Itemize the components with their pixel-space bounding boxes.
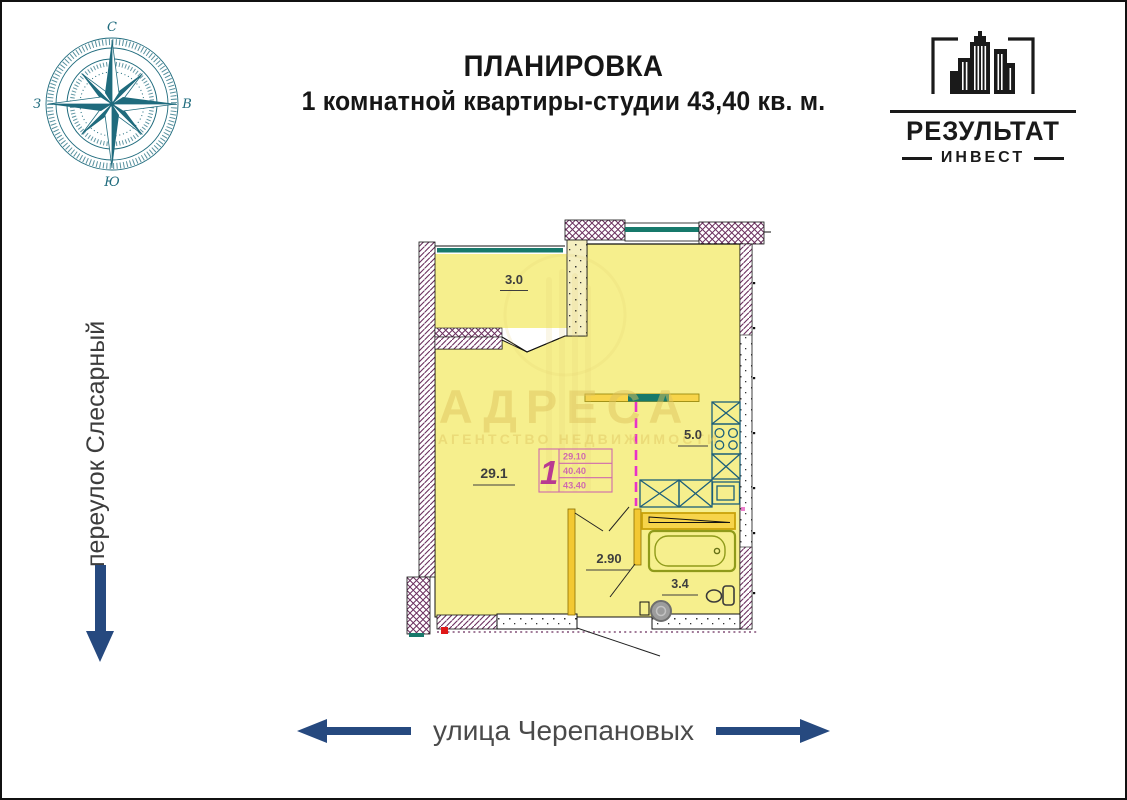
wall-bottom-left-texture — [497, 614, 577, 629]
arrow-head — [86, 631, 114, 662]
window-kitchen — [625, 227, 699, 232]
washing-machine — [651, 601, 671, 621]
wall-right-hatch-bottom — [740, 547, 752, 629]
logo-subtitle-row: ИНВЕСТ — [890, 149, 1076, 167]
logo-subtitle: ИНВЕСТ — [941, 149, 1025, 167]
window-balcony — [437, 248, 563, 253]
corner-teal-mark — [409, 633, 424, 637]
arrow-shaft — [327, 727, 411, 735]
bathroom-area-label: 3.4 — [671, 577, 688, 591]
flyer-page: С В Ю З ПЛАНИРОВКА 1 комнатной квартиры-… — [0, 0, 1127, 800]
kitchen-area-label: 5.0 — [684, 427, 702, 442]
wall-top-cross-left — [565, 220, 625, 240]
stamp-rooms: 1 — [540, 454, 558, 491]
wall-left-bottom — [407, 577, 430, 634]
logo-divider — [890, 110, 1076, 113]
stamp-total-area: 43.40 — [563, 481, 586, 491]
living-area-label: 29.1 — [480, 465, 507, 481]
compass-letter-west: З — [33, 97, 41, 112]
stamp-apartment-area: 40.40 — [563, 466, 586, 476]
watermark-title: АДРЕСА — [439, 380, 692, 433]
building-icon — [918, 28, 1048, 108]
arrow-shaft — [95, 565, 106, 631]
pink-mark — [741, 507, 745, 511]
wall-right-hatch-top — [740, 244, 752, 335]
arrow-head — [297, 719, 327, 743]
entrance-door — [577, 628, 660, 656]
watermark-subtitle: АГЕНТСТВО НЕДВИЖИМОСТИ — [438, 431, 721, 447]
logo-dash-right — [1034, 157, 1064, 160]
balcony-area-label: 3.0 — [505, 272, 523, 287]
wall-top-cross-right — [699, 222, 764, 244]
agency-logo: РЕЗУЛЬТАТ ИНВЕСТ — [890, 28, 1076, 167]
logo-dash-left — [902, 157, 932, 160]
street-bottom-arrow-left-icon — [297, 719, 411, 743]
stamp-living-area: 29.10 — [563, 452, 586, 462]
corner-red-mark — [441, 627, 448, 634]
compass-letter-north: С — [107, 20, 117, 35]
hallway-area-label: 2.90 — [596, 551, 621, 566]
street-left-block: переулок Слесарный — [68, 282, 128, 567]
logo-name: РЕЗУЛЬТАТ — [895, 116, 1072, 147]
wall-right-texture — [740, 337, 752, 545]
wall-left — [419, 242, 435, 577]
street-left-arrow-down-icon — [86, 565, 114, 662]
street-bottom-arrow-right-icon — [716, 719, 830, 743]
balcony-sill-cross — [435, 328, 502, 337]
dimension-ticks — [753, 282, 755, 594]
arrow-shaft — [716, 727, 800, 735]
floor-plan: АДРЕСА АГЕНТСТВО НЕДВИЖИМОСТИ 3.0 29.1 5… — [397, 197, 772, 657]
street-bottom-block: улица Черепановых — [2, 715, 1125, 747]
wall-bottom-hatch — [437, 615, 497, 629]
bathroom-wall — [634, 509, 641, 565]
hallway-wall — [568, 509, 575, 615]
arrow-head — [800, 719, 830, 743]
balcony-sill-hatch — [435, 337, 502, 349]
street-left-label: переулок Слесарный — [82, 282, 111, 567]
compass-letter-south: Ю — [103, 175, 120, 190]
street-bottom-label: улица Черепановых — [433, 715, 694, 747]
